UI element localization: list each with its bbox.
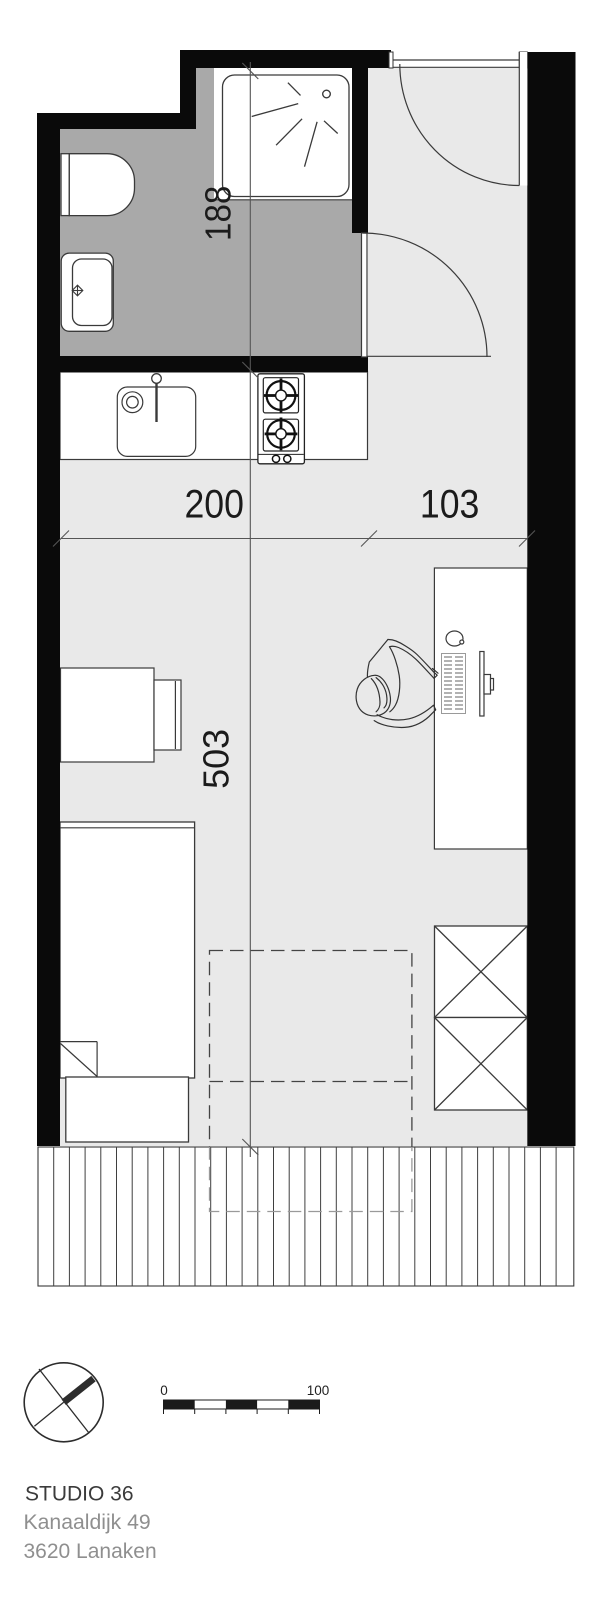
svg-text:Kanaaldijk 49: Kanaaldijk 49 (24, 1511, 151, 1534)
svg-text:188: 188 (199, 186, 239, 241)
svg-text:103: 103 (420, 482, 479, 526)
svg-text:0: 0 (160, 1383, 168, 1398)
svg-text:STUDIO 36: STUDIO 36 (25, 1482, 134, 1505)
svg-text:3620 Lanaken: 3620 Lanaken (24, 1540, 157, 1563)
svg-text:200: 200 (184, 482, 243, 526)
svg-text:100: 100 (307, 1383, 330, 1398)
svg-text:503: 503 (196, 729, 237, 789)
